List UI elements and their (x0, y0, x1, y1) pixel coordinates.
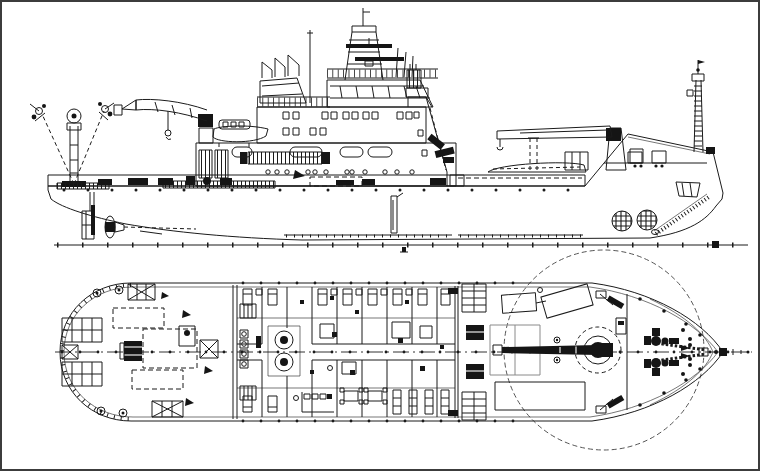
drawing-sheet (0, 0, 760, 471)
ship-general-arrangement-drawing (0, 0, 760, 471)
